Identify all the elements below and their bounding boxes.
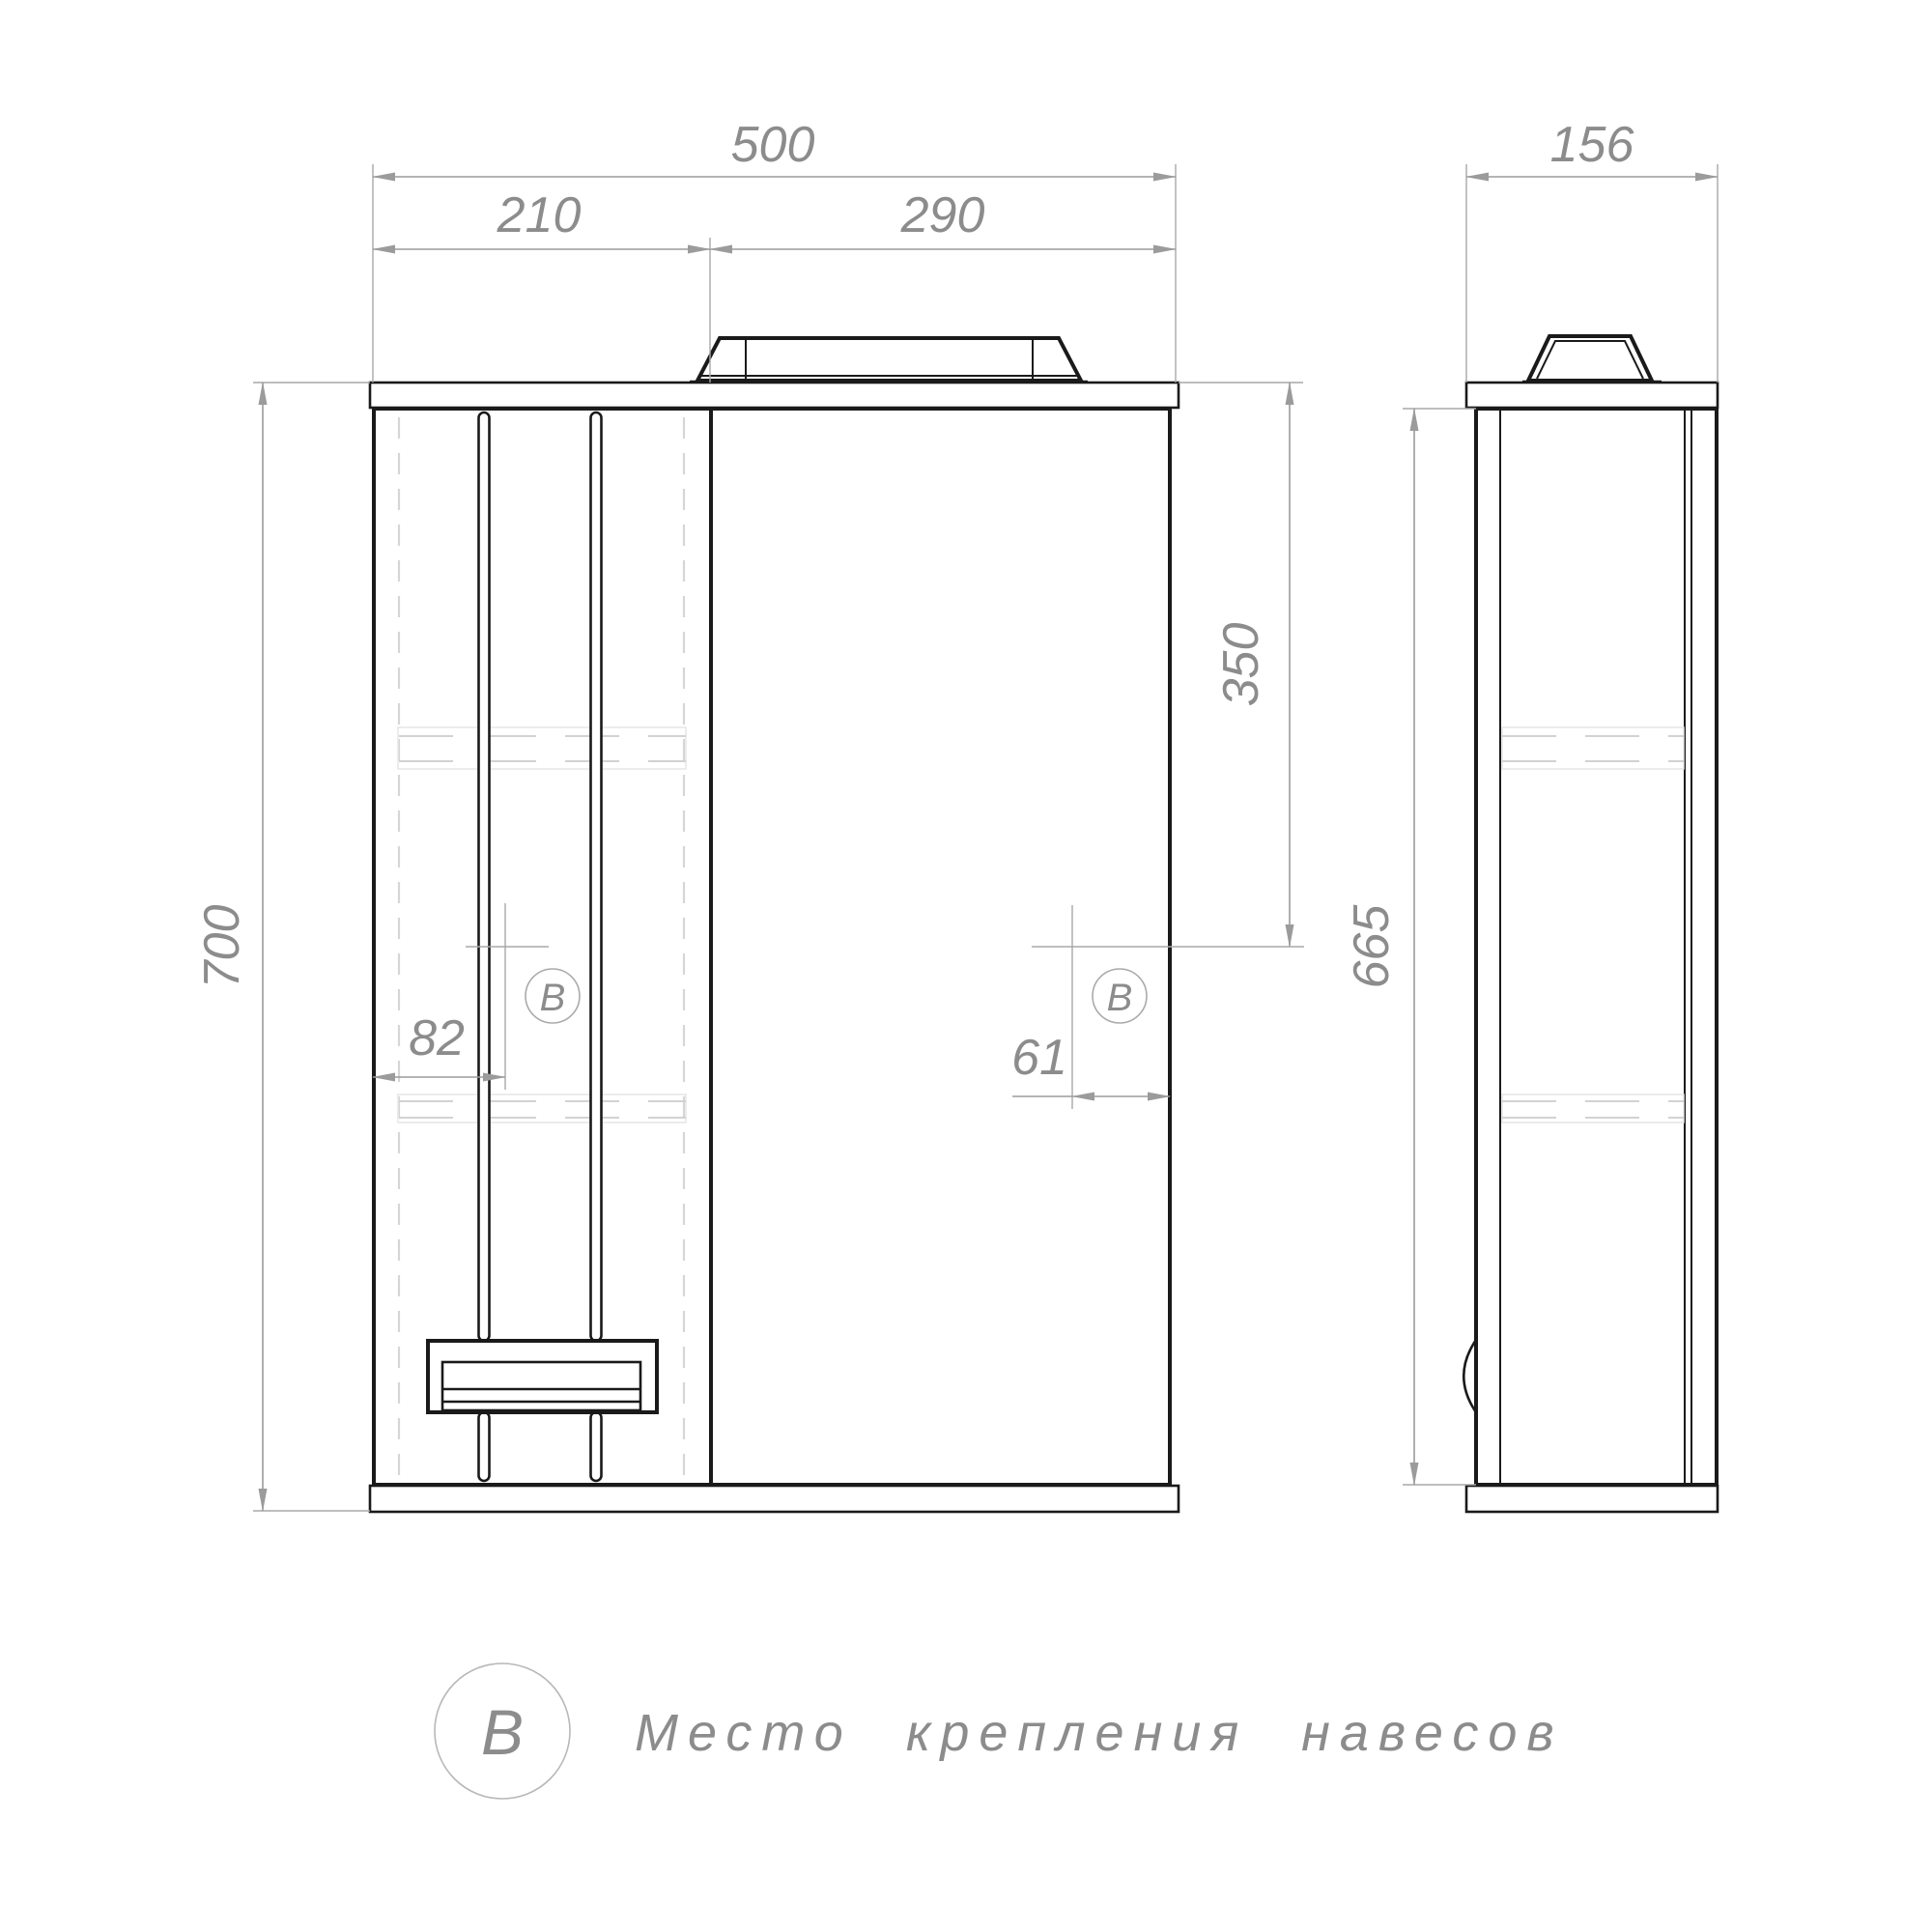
door-groove-left-upper (479, 412, 490, 1341)
dim-right-section-label: 290 (900, 187, 985, 243)
lamp-front (690, 338, 1088, 382)
legend-symbol-letter: В (481, 1696, 524, 1768)
side-top-board (1466, 383, 1718, 408)
dim-mount-top-label: 350 (1213, 623, 1269, 707)
dim-depth-label: 156 (1550, 117, 1634, 173)
dim-mount-top-offset: 350 (1179, 383, 1303, 947)
dim-left-section-width: 210 (373, 187, 710, 383)
side-bottom-board (1466, 1486, 1718, 1512)
dim-right-section-width: 290 (710, 187, 1176, 249)
door-groove-right-upper (591, 412, 602, 1341)
dim-left-section-label: 210 (497, 187, 582, 243)
side-view: 156 665 (1344, 117, 1718, 1512)
lamp-side (1522, 336, 1662, 382)
dim-total-height-label: 700 (194, 905, 250, 989)
door-groove-right-lower (591, 1412, 602, 1481)
front-bottom-board (370, 1486, 1179, 1512)
front-top-board (370, 383, 1179, 408)
mount-marker-right-letter: В (1107, 977, 1133, 1019)
technical-drawing: 500 210 290 700 350 В (0, 0, 1932, 1932)
front-view: 500 210 290 700 350 В (194, 117, 1304, 1512)
dim-mount-right-label: 61 (1011, 1030, 1067, 1086)
mount-marker-left-letter: В (540, 977, 566, 1019)
side-body (1476, 409, 1717, 1485)
legend: В Место крепления навесов (435, 1663, 1564, 1799)
legend-label: Место крепления навесов (635, 1704, 1564, 1762)
tray (428, 1341, 657, 1412)
dim-mount-left-label: 82 (409, 1010, 465, 1066)
dim-body-height: 665 (1344, 409, 1476, 1485)
lamp-front-body (697, 338, 1081, 381)
dim-total-height: 700 (194, 383, 370, 1511)
door-groove-left-lower (479, 1412, 490, 1481)
dim-body-height-label: 665 (1344, 904, 1400, 989)
dim-total-width-label: 500 (731, 117, 815, 173)
